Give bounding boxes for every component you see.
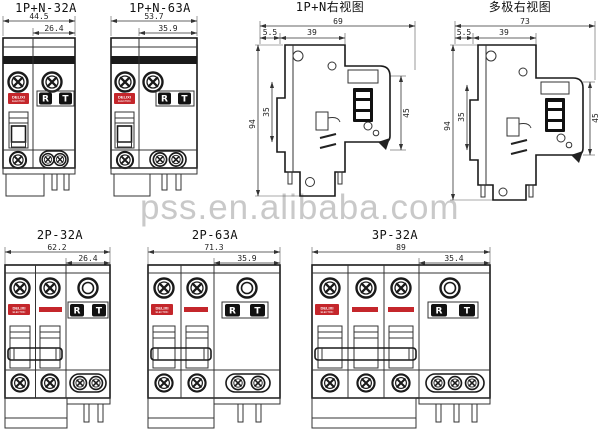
dimension-height-din: 35: [262, 82, 272, 142]
test-reset-buttons: R T: [428, 302, 478, 318]
svg-text:73: 73: [520, 17, 530, 26]
front-view-3p-32a: 3P-32A 89 35.4 DELIXI ELECTRIC: [298, 228, 500, 431]
test-reset-buttons: R T: [37, 91, 74, 106]
dimension-width-total: 44.5: [3, 12, 75, 36]
terminal-screw: [41, 279, 60, 298]
dimension-depth-body: 39: [280, 28, 345, 44]
svg-text:45: 45: [591, 113, 600, 123]
svg-text:53.7: 53.7: [144, 12, 163, 21]
dimension-width-right: 35.9: [139, 24, 197, 36]
bottom-screw: [10, 152, 26, 168]
test-reset-buttons: R T: [222, 302, 268, 318]
breaker-body: DELIXI ELECTRIC R T: [148, 265, 280, 428]
front-view-2p-63a: 2P-63A 71.3 35.9 DELIXI ELECTRIC: [138, 228, 295, 431]
bottom-screw: [392, 374, 409, 391]
dimension-offset: 5.5: [260, 28, 280, 44]
view-title: 2P-32A: [37, 228, 84, 242]
breaker-body: DELIXI ELECTRIC R T: [3, 38, 75, 196]
test-reset-buttons: R T: [156, 91, 194, 106]
view-title: 多极右视图: [489, 0, 552, 14]
brand-logo: DELIXI ELECTRIC: [151, 304, 173, 315]
front-view-1pn-63a: 1P+N-63A 53.7 35.9 DELIXI ELECTRIC: [106, 0, 206, 212]
svg-text:35.4: 35.4: [444, 254, 463, 263]
brand-logo: DELIXI ELECTRIC: [315, 304, 339, 315]
neutral-terminal: [150, 151, 186, 168]
front-view-2p-32a: 2P-32A 62.2 26.4 DELIXI ELECTRIC: [0, 228, 122, 431]
svg-text:44.5: 44.5: [29, 12, 48, 21]
svg-text:35: 35: [262, 107, 271, 117]
breaker-profile: [277, 45, 390, 196]
reset-button-label: R: [42, 95, 49, 105]
svg-text:94: 94: [248, 119, 257, 129]
dimension-height-din: 35: [457, 85, 467, 150]
dimension-depth-body: 39: [473, 28, 536, 44]
test-button-label: T: [254, 307, 261, 317]
svg-text:94: 94: [443, 121, 452, 131]
terminal-screw: [11, 279, 30, 298]
din-rail-foot: [312, 398, 490, 428]
pole-red-bar: [184, 307, 208, 312]
side-top-block: [348, 70, 378, 83]
reset-button-label: R: [229, 307, 236, 317]
product-label: [545, 98, 565, 132]
svg-text:ELECTRIC: ELECTRIC: [13, 310, 26, 314]
handle-tie-bar: [315, 348, 416, 360]
terminal-screw: [116, 73, 135, 92]
din-rail-foot: [148, 398, 280, 428]
bottom-screw: [357, 374, 374, 391]
svg-text:DELIXI: DELIXI: [321, 306, 334, 311]
dimension-width-total: 53.7: [111, 12, 197, 36]
dimension-depth-total: 73: [455, 17, 595, 80]
pole-red-bar: [388, 307, 414, 312]
svg-text:ELECTRIC: ELECTRIC: [118, 99, 131, 103]
dimension-width-right: 35.4: [419, 254, 490, 265]
test-button-label: T: [464, 307, 471, 317]
breaker-body: DELIXI ELECTRIC R T: [5, 265, 110, 428]
dimension-width-right: 35.9: [214, 254, 280, 265]
reset-button-label: R: [161, 95, 168, 105]
neutral-terminal: [70, 374, 106, 392]
breaker-profile: [470, 45, 583, 200]
svg-text:35.9: 35.9: [158, 24, 177, 33]
terminal-screw-plain: [79, 279, 98, 298]
din-rail-foot: [111, 168, 197, 196]
terminal-screw: [392, 279, 411, 298]
test-reset-buttons: R T: [68, 302, 108, 318]
test-button-label: T: [96, 307, 103, 317]
dimension-height-right: 45: [583, 82, 600, 155]
terminal-screw: [43, 73, 62, 92]
view-title: 1P+N右视图: [296, 0, 364, 14]
terminal-screw: [188, 279, 207, 298]
terminal-screw: [144, 73, 163, 92]
bottom-screw: [11, 374, 28, 391]
svg-text:DELIXI: DELIXI: [13, 306, 26, 311]
internal-lever: [316, 112, 340, 130]
latch-clip: [378, 138, 390, 150]
svg-text:39: 39: [307, 28, 317, 37]
technical-drawing-sheet: pss.en.alibaba.com 1P+N-32A 44.5 26.4 DE…: [0, 0, 600, 431]
din-rail-foot: [5, 398, 110, 428]
svg-text:39: 39: [499, 28, 509, 37]
bottom-screw: [321, 374, 338, 391]
neutral-terminal: [40, 151, 68, 168]
terminal-screw: [321, 279, 340, 298]
svg-text:ELECTRIC: ELECTRIC: [12, 99, 25, 103]
terminal-screw: [155, 279, 174, 298]
svg-text:26.4: 26.4: [44, 24, 63, 33]
product-label: [353, 88, 373, 122]
bottom-screw: [188, 374, 205, 391]
test-button-label: T: [181, 95, 188, 105]
latch-clip: [571, 151, 583, 163]
din-rail-foot: [3, 168, 75, 196]
svg-text:45: 45: [402, 108, 411, 118]
front-view-1pn-32a: 1P+N-32A 44.5 26.4 DELIXI ELECTRIC: [0, 0, 110, 212]
terminal-screw: [9, 73, 28, 92]
breaker-body: DELIXI ELECTRIC R T: [312, 265, 490, 428]
svg-text:26.4: 26.4: [78, 254, 97, 263]
neutral-terminal: [226, 374, 270, 392]
svg-text:DELIXI: DELIXI: [118, 95, 131, 100]
svg-text:89: 89: [396, 243, 406, 252]
svg-text:69: 69: [333, 17, 343, 26]
dimension-height-right: 45: [390, 76, 411, 150]
internal-lever: [507, 118, 531, 136]
svg-text:5.5: 5.5: [263, 28, 278, 37]
toggle-switch: [9, 112, 28, 148]
test-button-label: T: [62, 95, 69, 105]
toggle-switch: [115, 112, 134, 148]
dimension-width-right: 26.4: [33, 24, 75, 36]
bottom-screw: [155, 374, 172, 391]
svg-text:ELECTRIC: ELECTRIC: [321, 310, 334, 314]
bottom-screw: [41, 374, 58, 391]
pole-red-bar: [39, 307, 62, 312]
terminal-screw-plain: [238, 279, 257, 298]
svg-text:35: 35: [457, 112, 466, 122]
svg-text:71.3: 71.3: [204, 243, 223, 252]
view-title: 2P-63A: [192, 228, 239, 242]
svg-text:ELECTRIC: ELECTRIC: [156, 310, 169, 314]
svg-text:5.5: 5.5: [457, 28, 472, 37]
dimension-offset: 5.5: [455, 28, 473, 44]
dimension-depth-total: 69: [260, 17, 415, 70]
brand-logo: DELIXI ELECTRIC: [114, 93, 135, 104]
brand-logo: DELIXI ELECTRIC: [8, 304, 30, 315]
bottom-screw: [117, 152, 133, 168]
svg-text:35.9: 35.9: [237, 254, 256, 263]
svg-text:DELIXI: DELIXI: [12, 95, 25, 100]
svg-text:DELIXI: DELIXI: [156, 306, 169, 311]
toggle-switches: [315, 326, 416, 368]
side-view-1pn: 1P+N右视图 69 5.5 39 94 35 45: [228, 0, 425, 215]
side-top-block: [541, 82, 569, 94]
side-view-multipole: 多极右视图 73 5.5 39 94 35 45: [423, 0, 600, 215]
neutral-terminal: [426, 374, 484, 392]
view-title: 3P-32A: [372, 228, 419, 242]
brand-logo: DELIXI ELECTRIC: [8, 93, 29, 104]
reset-button-label: R: [74, 307, 81, 317]
reset-button-label: R: [436, 307, 443, 317]
breaker-body: DELIXI ELECTRIC R T: [111, 38, 197, 196]
svg-text:62.2: 62.2: [47, 243, 66, 252]
dimension-width-right: 26.4: [66, 254, 110, 265]
terminal-screw-plain: [441, 279, 460, 298]
terminal-screw: [357, 279, 376, 298]
pole-red-bar: [352, 307, 378, 312]
